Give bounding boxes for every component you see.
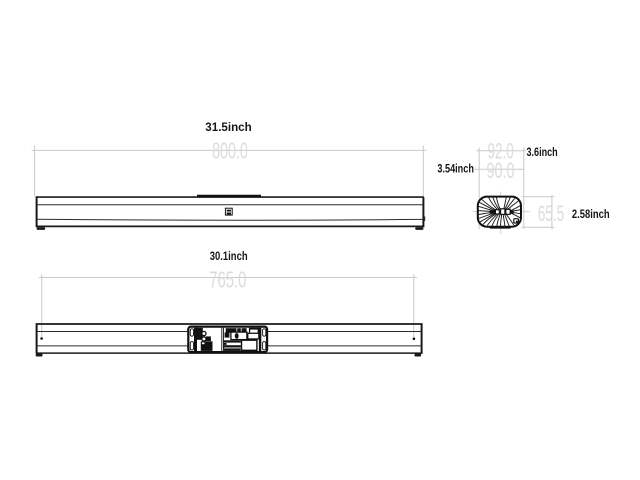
svg-text:30.1inch: 30.1inch [210, 249, 248, 263]
svg-text:3.6inch: 3.6inch [527, 145, 558, 159]
svg-text:3.54inch: 3.54inch [437, 162, 474, 176]
svg-text:65.5: 65.5 [538, 201, 565, 226]
svg-text:2.58inch: 2.58inch [572, 207, 610, 221]
svg-text:800.0: 800.0 [212, 138, 248, 164]
svg-text:31.5inch: 31.5inch [205, 120, 251, 134]
svg-text:765.0: 765.0 [209, 267, 246, 293]
svg-text:90.0: 90.0 [487, 158, 515, 183]
